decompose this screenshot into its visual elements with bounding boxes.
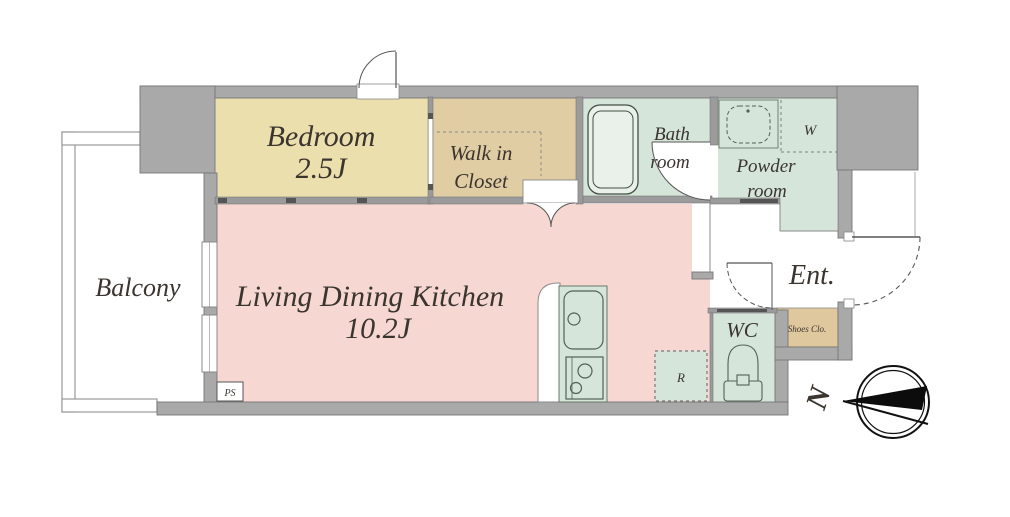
ldk-hall-threshold [692,204,710,272]
bathtub-icon [588,105,638,194]
walk-in-closet-label-line1: Walk in [450,141,513,165]
entrance-label: Ent. [788,260,835,291]
compass-north-label: N [799,381,838,414]
compass: N [799,366,929,438]
wall-bottom [157,402,788,415]
bedroom-door-swing-arc [359,51,396,88]
powder-room-extension-floor [780,198,837,231]
kitchen-partition [538,283,560,402]
slider-tick [286,198,296,203]
basin-faucet-dot [746,109,749,112]
refrigerator-marker-label: R [676,370,685,385]
toilet-seat-notch [737,375,749,385]
wall-bath-powder [710,97,718,145]
hallway-floor [710,204,780,310]
wall-top [140,86,918,98]
slider-tick [218,198,227,203]
pipe-shaft-label: PS [223,388,235,399]
powder-room-label-line2: room [747,181,786,202]
wall-left-upper [204,173,217,242]
balcony-label: Balcony [95,273,181,302]
floor-plan-drawing: N Bedroom 2.5J Walk in Closet Bath room … [0,0,1010,517]
wall-hall-stub [692,272,713,279]
wall-top-left-block [140,86,215,173]
ldk-size-label: 10.2J [345,312,413,345]
wall-left-lower [204,372,217,403]
slider-tick [357,198,367,203]
ldk-label: Living Dining Kitchen [235,280,504,313]
entrance-door-jamb [844,299,854,308]
bath-room-label-line2: room [650,152,689,173]
walk-in-closet-label-line2: Closet [454,169,509,193]
wall-right-lower [838,302,852,360]
closet-door-alcove [523,180,578,203]
bath-room-label-line1: Bath [654,124,690,145]
wall-wc-left [710,313,713,402]
wall-closet-ldk [430,197,523,204]
balcony-rail-left [62,132,75,412]
wall-right-upper [838,170,852,238]
wall-top-right-block [837,86,918,170]
powder-room-label-line1: Powder [735,156,796,177]
bedroom-size-label: 2.5J [296,152,349,185]
bedroom-door-gap [357,84,399,99]
slider-tick [428,184,433,190]
balcony-rail-top [62,132,140,145]
bedroom-label: Bedroom [267,120,376,153]
slider-tick [428,113,433,119]
wc-label: WC [726,318,758,342]
bath-door-opening [710,145,718,198]
shoes-closet-label: Shoes Clo. [788,324,827,334]
bedroom-closet-slider-gap [429,117,433,186]
entrance-door-swing-arc [852,237,920,305]
washer-marker-label: W [804,123,818,139]
wc-sliding-door [717,309,767,312]
floor-plan-page: N Bedroom 2.5J Walk in Closet Bath room … [0,0,1010,517]
wall-left-mullion [204,307,217,315]
balcony-rail [62,132,157,412]
wall-bedroom-ldk [215,197,430,204]
balcony-rail-bottom [62,399,157,412]
